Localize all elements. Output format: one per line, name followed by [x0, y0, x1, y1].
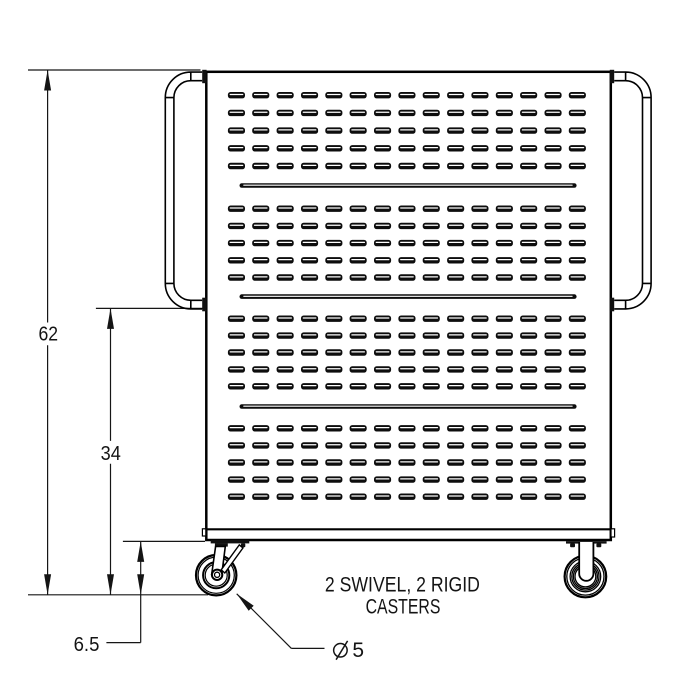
svg-text:2 SWIVEL, 2 RIGID: 2 SWIVEL, 2 RIGID	[325, 574, 480, 597]
svg-text:34: 34	[101, 442, 121, 465]
svg-text:62: 62	[39, 323, 59, 346]
svg-text:CASTERS: CASTERS	[366, 596, 441, 619]
svg-text:6.5: 6.5	[74, 633, 100, 656]
svg-text:5: 5	[352, 639, 364, 662]
